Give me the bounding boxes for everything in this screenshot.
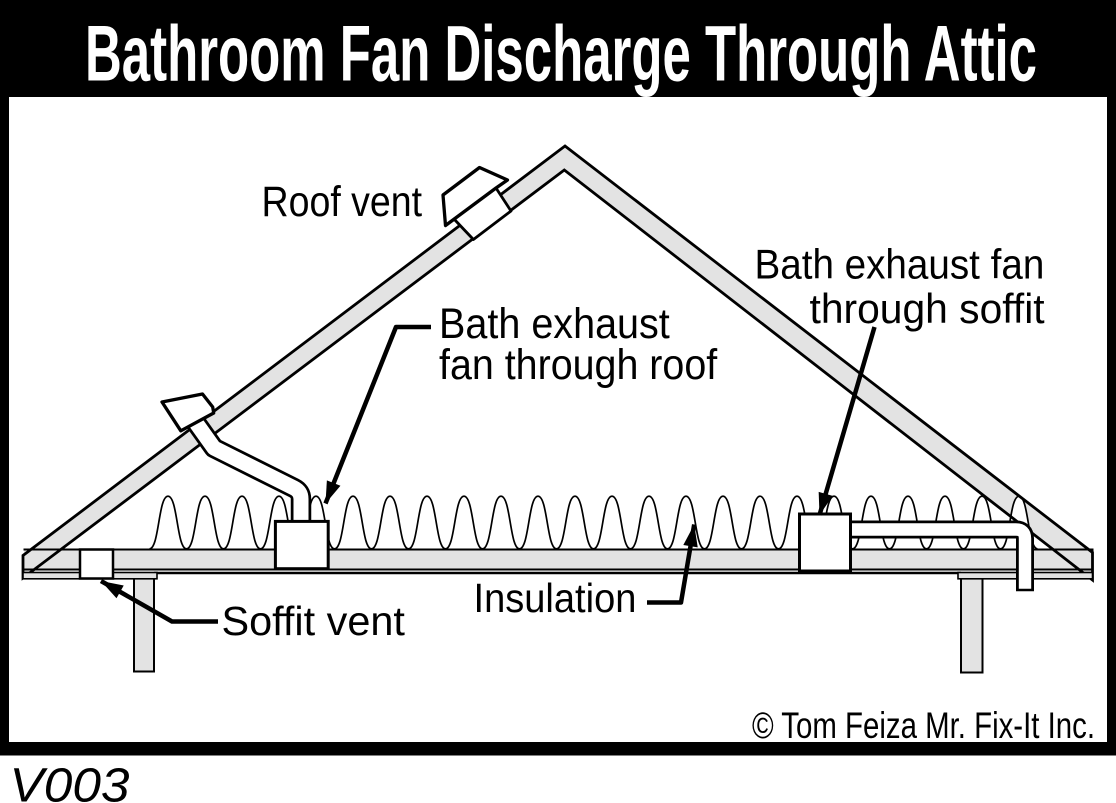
- svg-text:Insulation: Insulation: [474, 575, 637, 621]
- svg-text:Soffit vent: Soffit vent: [222, 598, 406, 644]
- svg-text:through soffit: through soffit: [810, 285, 1045, 332]
- svg-text:Roof vent: Roof vent: [262, 178, 423, 226]
- svg-text:fan through roof: fan through roof: [439, 341, 718, 389]
- svg-text:Bath exhaust fan: Bath exhaust fan: [755, 241, 1045, 288]
- svg-text:V003: V003: [10, 760, 130, 803]
- svg-text:Bathroom Fan Discharge Through: Bathroom Fan Discharge Through Attic: [85, 8, 1037, 97]
- svg-text:© Tom Feiza Mr. Fix-It Inc.: © Tom Feiza Mr. Fix-It Inc.: [752, 705, 1095, 746]
